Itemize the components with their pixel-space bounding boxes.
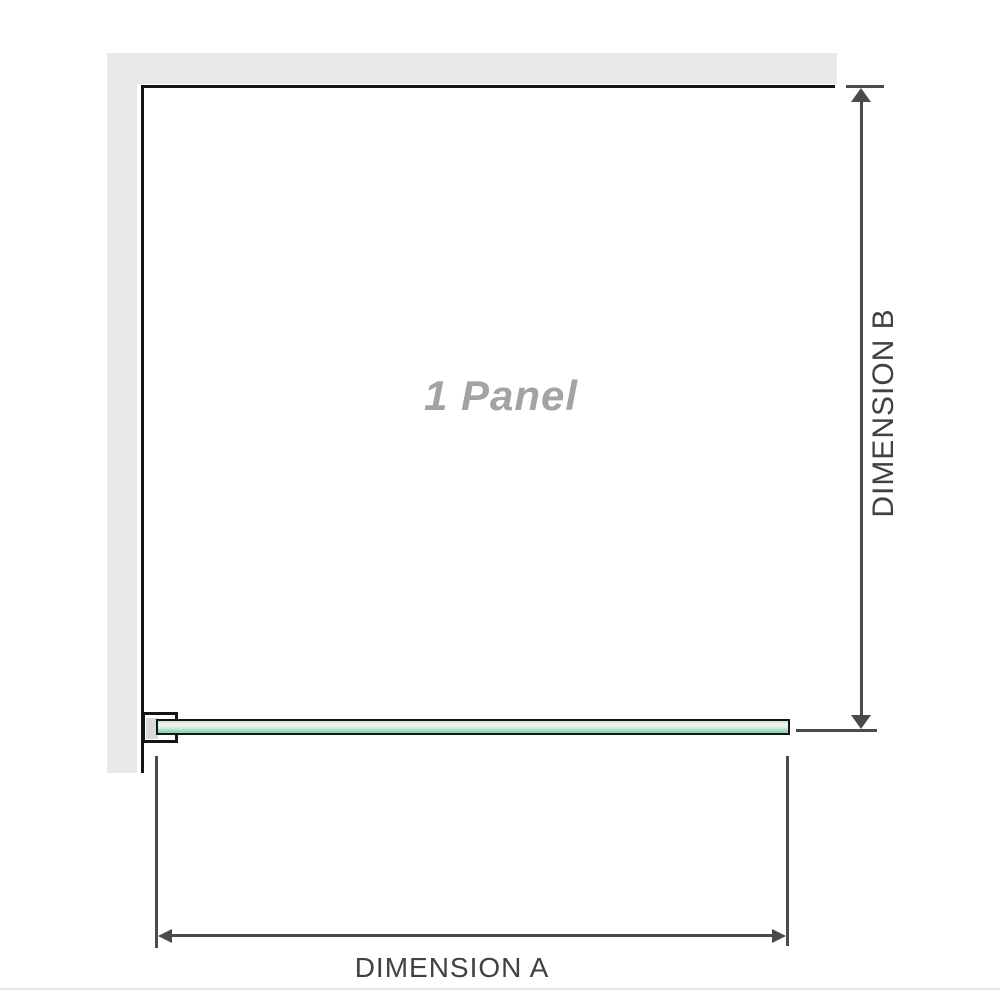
wall-top: [107, 53, 837, 84]
dim-a-left-extension-line: [155, 756, 158, 948]
dimension-a-label: DIMENSION A: [355, 952, 550, 984]
arrow-left-icon: [158, 929, 172, 943]
dim-a-arrow-line: [168, 934, 776, 937]
dimension-b-label: DIMENSION B: [867, 308, 901, 517]
panel-count-label: 1 Panel: [424, 372, 578, 420]
glass-panel-bar: [156, 719, 790, 735]
panel-frame-left-edge: [141, 85, 144, 773]
dim-b-bottom-tick: [796, 729, 877, 732]
arrow-up-icon: [851, 88, 871, 102]
arrow-right-icon: [772, 929, 786, 943]
dim-b-arrow-line: [860, 98, 863, 720]
wall-left: [107, 53, 137, 773]
dim-a-right-extension-line: [786, 756, 789, 946]
panel-frame-top-edge: [141, 85, 835, 88]
arrow-down-icon: [851, 715, 871, 729]
page-divider-line: [0, 988, 1000, 990]
panel-dimension-diagram: 1 Panel DIMENSION B DIMENSION A: [0, 0, 1000, 1000]
